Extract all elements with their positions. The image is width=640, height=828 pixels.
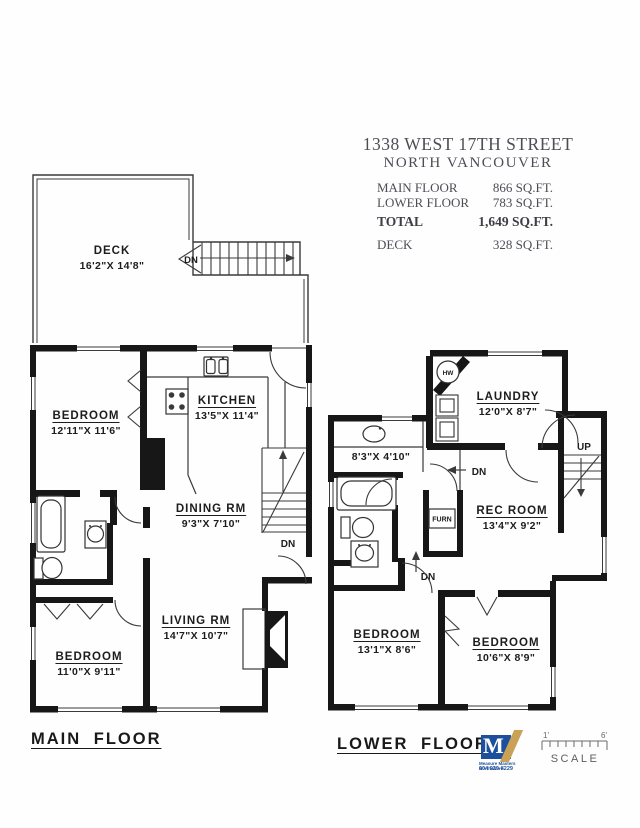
room-name: LIVING RM [162, 614, 230, 629]
scale-bar [542, 741, 607, 750]
stairs-up-marker: UP [577, 442, 591, 453]
room-name: BEDROOM [51, 409, 121, 424]
room-dims: 13'4"X 9'2" [476, 519, 547, 534]
room-label-rec-room: REC ROOM 13'4"X 9'2" [476, 504, 547, 534]
dn-stairs-arrow [412, 551, 420, 572]
stove-icon [166, 389, 188, 414]
scale-right-label: 6' [601, 731, 607, 740]
lower-toilet-icon [341, 517, 374, 538]
room-dims: 14'7"X 10'7" [162, 629, 230, 644]
scale-left-label: 1' [543, 731, 549, 740]
area-value: 783 SQ.FT. [493, 195, 553, 211]
area-row-deck: DECK 328 SQ.FT. [377, 237, 553, 253]
area-row-main-floor: MAIN FLOOR 866 SQ.FT. [377, 180, 553, 196]
furnace-label: FURN [432, 517, 451, 524]
room-dims: 9'3"X 7'10" [176, 517, 246, 532]
room-dims: 11'0"X 9'11" [55, 665, 122, 680]
room-label-dining-rm: DINING RM 9'3"X 7'10" [176, 502, 246, 532]
lower-floor-caption: LOWER FLOOR [337, 735, 489, 754]
room-label-bedroom-left: BEDROOM 13'1"X 8'6" [353, 628, 420, 658]
washer-icon [436, 395, 458, 416]
scale-label: SCALE [551, 753, 600, 765]
dryer-icon [436, 418, 458, 441]
dn-hall-marker: DN [472, 467, 486, 478]
area-value: 328 SQ.FT. [493, 237, 553, 253]
kitchen-sink-icon [204, 357, 228, 376]
room-dims: 16'2"X 14'8" [80, 259, 145, 274]
room-name: BEDROOM [353, 628, 420, 643]
lower-bathroom-sink-icon [351, 541, 378, 567]
room-label-bedroom-lower: BEDROOM 11'0"X 9'11" [55, 650, 122, 680]
room-dims: 8'3"X 4'10" [352, 450, 410, 465]
room-name: BEDROOM [55, 650, 122, 665]
main-floor-caption: MAIN FLOOR [31, 730, 162, 749]
main-stairs-icon [262, 448, 306, 533]
deck-dn-marker: DN [184, 255, 198, 266]
area-label: TOTAL [377, 214, 423, 230]
room-name: KITCHEN [195, 394, 259, 409]
area-row-lower-floor: LOWER FLOOR 783 SQ.FT. [377, 195, 553, 211]
room-dims: 13'5"X 11'4" [195, 409, 259, 424]
bathroom-sink-icon [85, 521, 106, 548]
utility-sink-icon [363, 426, 385, 442]
room-name: DINING RM [176, 502, 246, 517]
area-value: 1,649 SQ.FT. [478, 214, 553, 230]
page-subtitle: NORTH VANCOUVER [352, 155, 584, 172]
room-name: REC ROOM [476, 504, 547, 519]
floor-plan-page: DN [0, 0, 640, 828]
area-row-total: TOTAL 1,649 SQ.FT. [377, 214, 553, 230]
room-label-deck: DECK 16'2"X 14'8" [80, 244, 145, 274]
hot-water-label: HW [443, 370, 455, 377]
deck-outline [33, 175, 308, 348]
area-label: LOWER FLOOR [377, 195, 469, 211]
room-label-utility: 8'3"X 4'10" [352, 450, 410, 465]
room-label-bedroom-right: BEDROOM 10'6"X 8'9" [472, 636, 539, 666]
toilet-icon [34, 558, 62, 580]
fireplace-icon [243, 609, 288, 669]
measure-masters-logo: M Measure Masters Northshore 604 929-822… [479, 733, 531, 775]
room-name: BEDROOM [472, 636, 539, 651]
room-label-kitchen: KITCHEN 13'5"X 11'4" [195, 394, 259, 424]
page-title: 1338 WEST 17TH STREET [352, 134, 584, 155]
lower-bathtub-icon [337, 477, 396, 510]
room-label-laundry: LAUNDRY 12'0"X 8'7" [477, 390, 540, 420]
room-dims: 13'1"X 8'6" [353, 643, 420, 658]
room-name: LAUNDRY [477, 390, 540, 405]
logo-phone: 604 929-8229 [479, 766, 535, 773]
closet-zigzag-door [445, 616, 459, 646]
area-label: MAIN FLOOR [377, 180, 458, 196]
room-dims: 12'0"X 8'7" [477, 405, 540, 420]
area-label: DECK [377, 237, 412, 253]
room-label-living-rm: LIVING RM 14'7"X 10'7" [162, 614, 230, 644]
area-value: 866 SQ.FT. [493, 180, 553, 196]
room-label-bedroom-upper: BEDROOM 12'11"X 11'6" [51, 409, 121, 439]
room-dims: 12'11"X 11'6" [51, 424, 121, 439]
bathtub-icon [37, 496, 65, 552]
room-dims: 10'6"X 8'9" [472, 651, 539, 666]
main-stairs-dn-marker: DN [281, 539, 295, 550]
logo-letter: M [483, 733, 504, 759]
room-name: DECK [80, 244, 145, 259]
lower-stairs-icon [564, 455, 601, 498]
